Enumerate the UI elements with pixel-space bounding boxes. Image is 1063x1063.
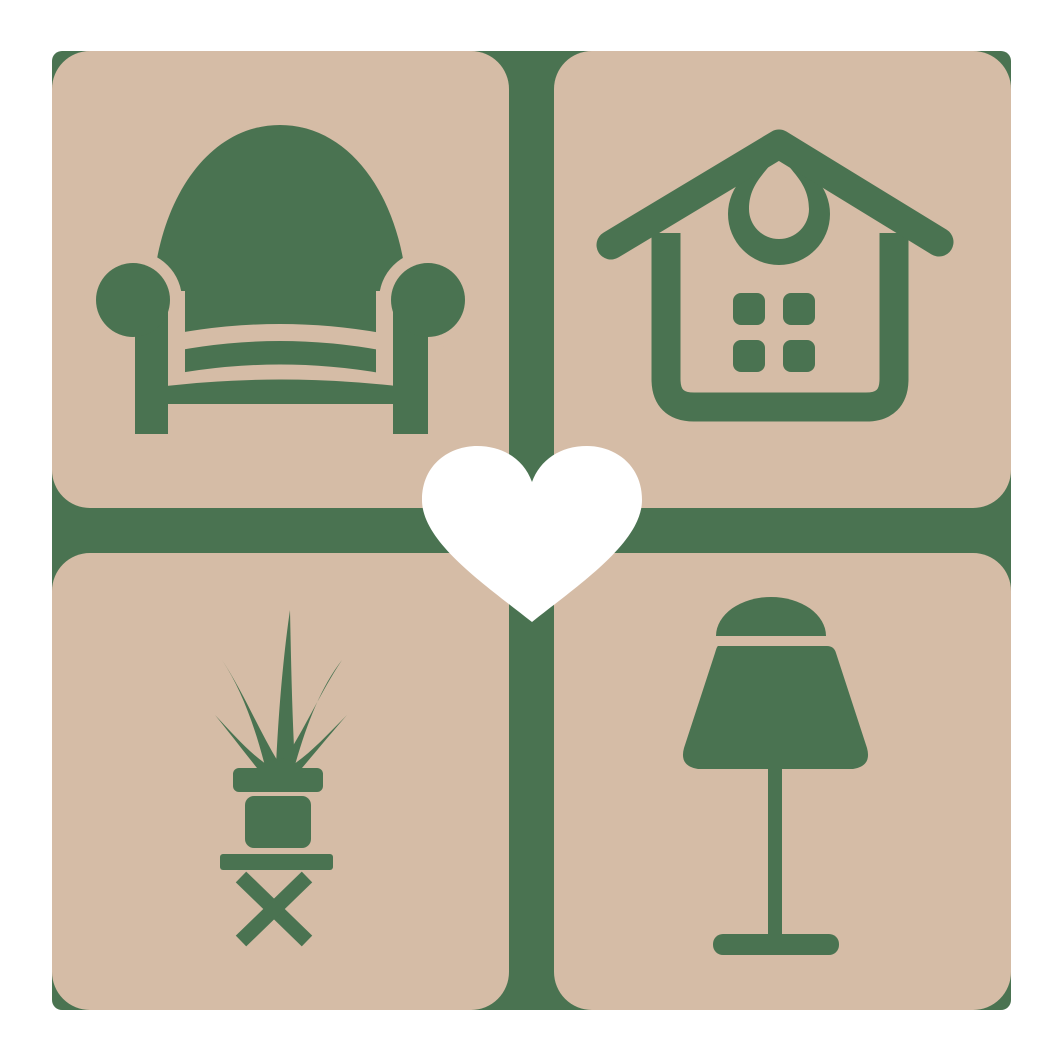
tile-top-left-armchair bbox=[52, 51, 509, 508]
house-icon bbox=[554, 51, 1011, 508]
logo-canvas bbox=[0, 0, 1063, 1063]
tile-top-right-house bbox=[554, 51, 1011, 508]
armchair-icon bbox=[52, 51, 509, 508]
heart-icon bbox=[422, 446, 642, 622]
